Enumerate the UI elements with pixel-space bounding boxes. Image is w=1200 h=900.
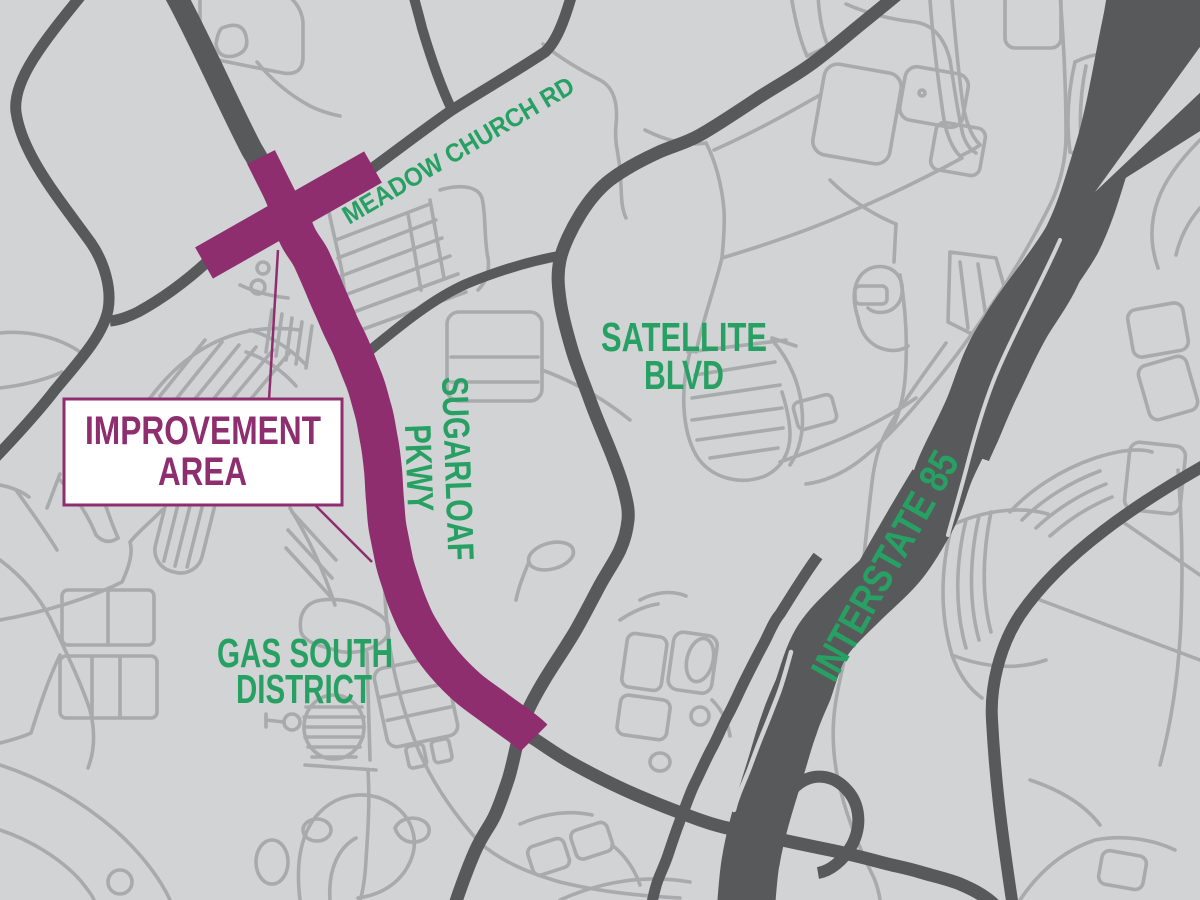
svg-text:SUGARLOAF: SUGARLOAF <box>434 376 481 561</box>
svg-text:PKWY: PKWY <box>397 424 441 513</box>
svg-text:IMPROVEMENT: IMPROVEMENT <box>85 409 321 453</box>
svg-text:BLVD: BLVD <box>644 352 724 398</box>
svg-text:AREA: AREA <box>158 450 247 494</box>
svg-text:DISTRICT: DISTRICT <box>236 666 372 712</box>
